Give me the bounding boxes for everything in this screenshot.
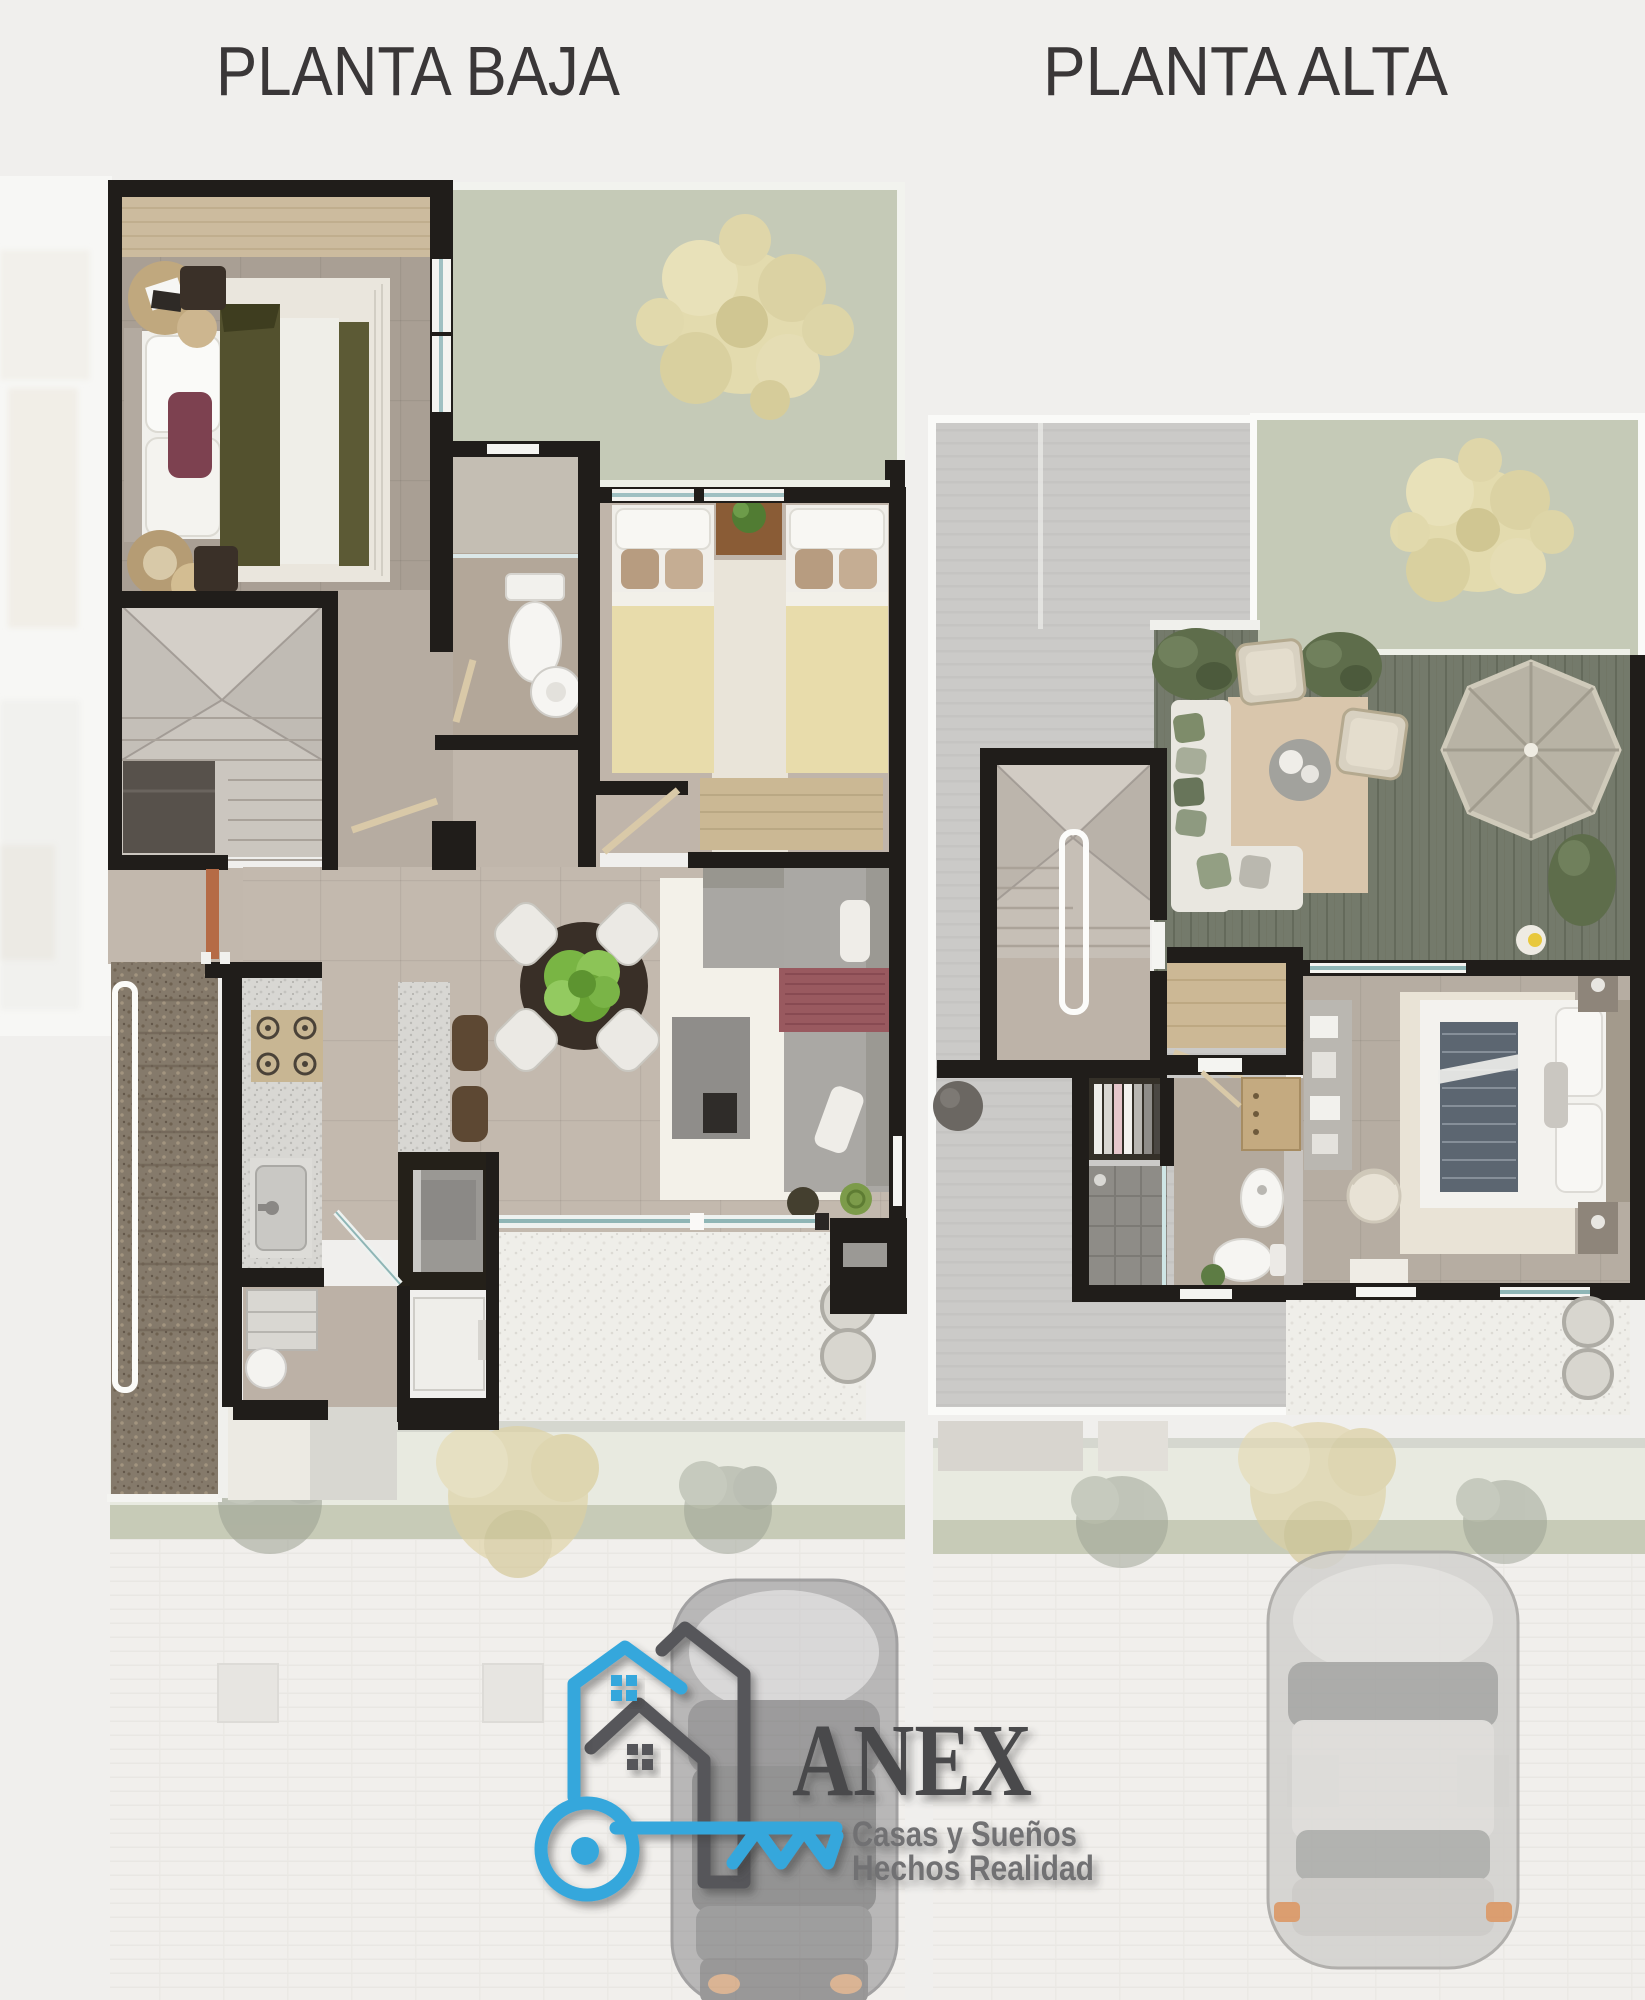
svg-text:ANEX: ANEX bbox=[792, 1703, 1032, 1818]
svg-text:PLANTA BAJA: PLANTA BAJA bbox=[216, 32, 620, 110]
svg-text:Hechos Realidad: Hechos Realidad bbox=[852, 1849, 1094, 1888]
svg-text:PLANTA ALTA: PLANTA ALTA bbox=[1043, 32, 1448, 110]
